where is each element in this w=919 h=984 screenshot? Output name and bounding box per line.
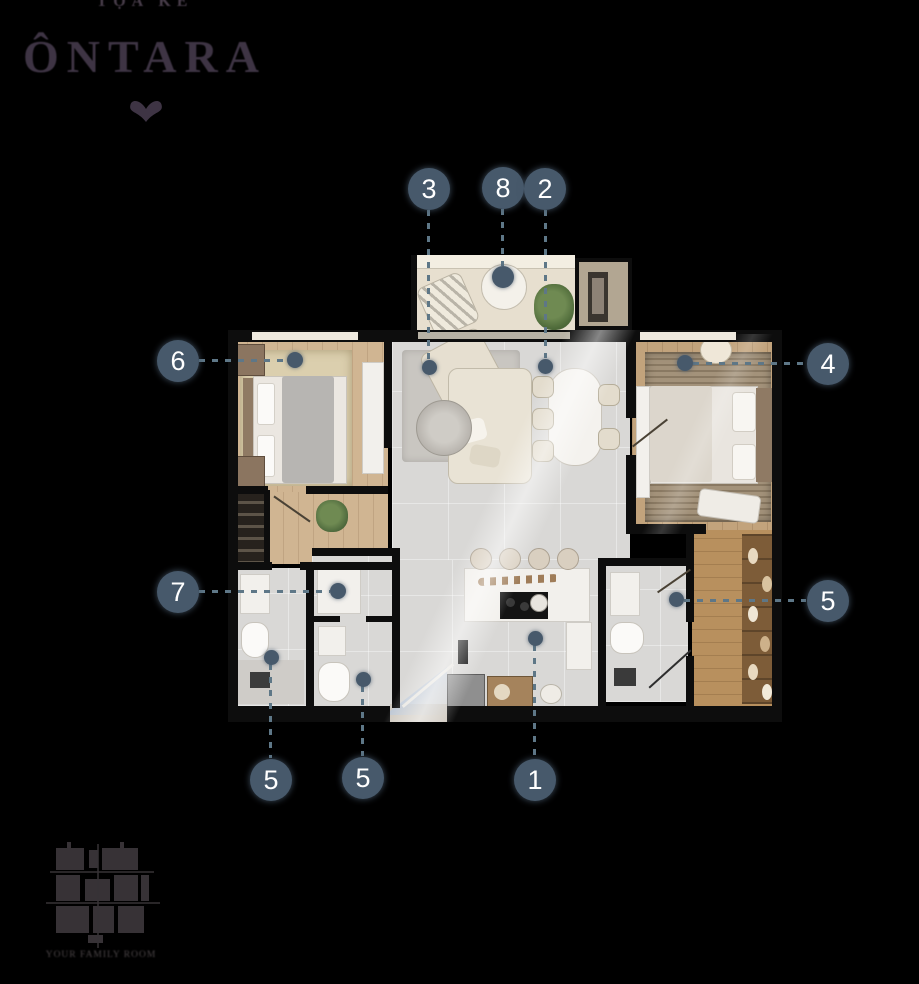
marker-label: 6	[170, 346, 185, 377]
nightstand	[237, 456, 265, 488]
brand-tagline: TỌA KỀ	[0, 0, 290, 11]
wall-left	[228, 330, 238, 722]
marker-1[interactable]: 1	[514, 759, 556, 801]
master-pillow	[732, 444, 756, 480]
bedroom-2-dresser	[362, 362, 384, 474]
wall-master-bottom	[626, 524, 706, 534]
screenshot-root: TỌA KỀ ÔNTARA	[0, 0, 919, 984]
shoes	[748, 664, 758, 680]
brand-logo-text: ÔNTARA	[0, 30, 290, 83]
shoes	[760, 636, 770, 652]
marker-8[interactable]: 8	[482, 167, 524, 209]
dining-chair	[532, 408, 554, 430]
island-return	[566, 622, 592, 670]
bar-stool	[557, 548, 579, 570]
wall-corridor-left	[686, 656, 694, 708]
leader-dot-5-right	[669, 592, 684, 607]
leader-line-3	[427, 210, 430, 359]
hallway-plant	[316, 500, 348, 532]
cooktop-burner	[506, 598, 515, 607]
plate-decor	[540, 684, 562, 704]
leader-line-1	[533, 645, 536, 758]
wall-bath-mid-top	[312, 548, 400, 556]
wall-bottom	[447, 706, 782, 722]
leader-line-5-bottomleft	[269, 664, 272, 758]
dining-chair	[532, 440, 554, 462]
shoes	[762, 684, 772, 700]
wall-closet-right	[264, 490, 270, 566]
bathroom-right-toilet	[610, 622, 644, 654]
marker-5-bottommid[interactable]: 5	[342, 757, 384, 799]
master-blanket	[650, 386, 712, 482]
balcony-plant	[534, 284, 574, 330]
leader-dot-6	[287, 352, 303, 368]
leader-dot-5-bottomleft	[264, 650, 279, 665]
cooktop-burner	[520, 602, 529, 611]
wall-master-left	[626, 330, 636, 418]
wall-bathR-left	[598, 558, 606, 708]
marker-label: 5	[355, 763, 370, 794]
marker-label: 1	[527, 765, 542, 796]
shower-drain	[614, 668, 636, 686]
wall-right	[772, 330, 782, 722]
leader-line-2	[544, 210, 547, 358]
leader-line-5-right	[684, 599, 806, 602]
wall-bath-mid-divider	[312, 616, 340, 622]
ac-unit-grille	[592, 278, 604, 314]
wall-master-left	[626, 455, 636, 530]
bowl	[494, 684, 510, 700]
wall-bath-mid-left	[306, 562, 314, 708]
wall-bathR-top	[598, 558, 694, 566]
marker-label: 4	[820, 349, 835, 380]
leader-line-4	[693, 362, 806, 365]
marker-5-right[interactable]: 5	[807, 580, 849, 622]
keyplan-diagram	[38, 842, 168, 955]
wall-bedroom2-right	[384, 330, 392, 448]
bathroom-left-vanity	[240, 574, 270, 614]
wall-bath-top	[300, 562, 398, 570]
marker-4[interactable]: 4	[807, 343, 849, 385]
leader-line-6	[199, 359, 287, 362]
bar-stool	[499, 548, 521, 570]
wall-bedroom2-bottom	[228, 486, 268, 494]
marker-2[interactable]: 2	[524, 168, 566, 210]
marker-3[interactable]: 3	[408, 168, 450, 210]
trash-bin	[447, 674, 485, 710]
marker-label: 2	[537, 174, 552, 205]
bathroom-middle-sink	[318, 626, 346, 656]
fleuron-icon	[127, 96, 165, 129]
balcony-wall-left	[411, 255, 417, 333]
bar-stool	[470, 548, 492, 570]
bar-stool	[528, 548, 550, 570]
leader-dot-4	[677, 355, 693, 371]
marker-6[interactable]: 6	[157, 340, 199, 382]
marker-label: 3	[421, 174, 436, 205]
wall-bottom	[228, 706, 390, 722]
leader-dot-2	[538, 359, 553, 374]
shoes	[748, 606, 758, 622]
shoes	[748, 548, 758, 564]
marker-label: 7	[170, 577, 185, 608]
marker-label: 8	[495, 173, 510, 204]
leader-dot-5-bottommid	[356, 672, 371, 687]
bathroom-middle-toilet	[318, 662, 350, 702]
master-pillow	[732, 392, 756, 432]
leader-dot-8	[492, 266, 514, 288]
leader-dot-7	[330, 583, 346, 599]
dining-table	[548, 368, 602, 466]
window-band	[640, 332, 736, 340]
coffee-table	[416, 400, 472, 456]
shoes	[762, 576, 772, 592]
leader-line-5-bottommid	[361, 686, 364, 756]
master-headboard	[756, 388, 772, 482]
wall-bath-top	[228, 562, 272, 570]
bedroom-2-pillow	[257, 383, 275, 425]
bathroom-right-sink	[610, 572, 640, 616]
marker-5-bottomleft[interactable]: 5	[250, 759, 292, 801]
leader-line-7	[199, 590, 330, 593]
bedroom-2-blanket	[282, 376, 334, 483]
leader-dot-3	[422, 360, 437, 375]
marker-label: 5	[263, 765, 278, 796]
balcony-slider	[418, 332, 570, 339]
dining-chair	[532, 376, 554, 398]
dining-chair	[598, 384, 620, 406]
dining-chair	[598, 428, 620, 450]
island-sink	[530, 594, 548, 612]
marker-label: 5	[820, 586, 835, 617]
wall-bath-mid-divider	[366, 616, 394, 622]
wall-bedroom2-bottom	[306, 486, 388, 494]
wall-entry-stub	[458, 640, 468, 664]
leader-dot-1	[528, 631, 543, 646]
wall-corridor-left	[686, 530, 694, 622]
shower-drain	[250, 672, 270, 688]
keyplan-caption: YOUR FAMILY ROOM	[30, 950, 172, 960]
window-band	[252, 332, 358, 340]
leader-line-8	[501, 209, 504, 266]
marker-7[interactable]: 7	[157, 571, 199, 613]
wall-bath-mid-right	[392, 548, 400, 708]
